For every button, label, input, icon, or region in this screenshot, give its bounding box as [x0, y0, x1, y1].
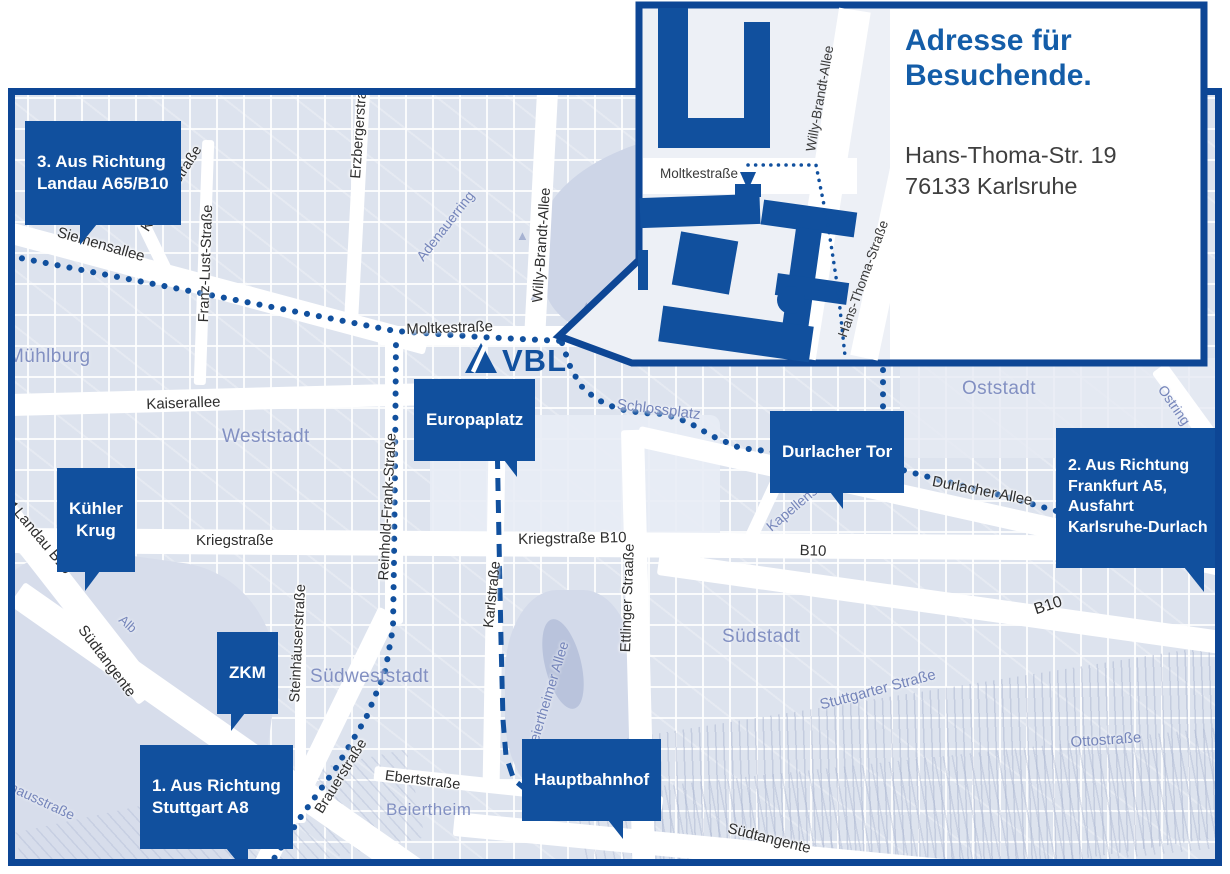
district-label-muehlburg: Mühlburg: [8, 346, 90, 368]
vbl-directions-map-page: ▲ ▲ ▲ Siemensallee Kußmaulstraße Franz-L…: [0, 0, 1230, 874]
district-label-oststadt: Oststadt: [962, 378, 1036, 400]
badge-durlacher-tor-label: Durlacher Tor: [782, 442, 892, 461]
badge-route-2-frankfurt: 2. Aus Richtung Frankfurt A5, Ausfahrt K…: [1056, 428, 1220, 568]
district-label-suedstadt: Südstadt: [722, 626, 800, 648]
badge-tail: [830, 492, 843, 509]
district-label-suedweststadt: Südweststadt: [310, 666, 429, 688]
badge-route-2-label: 2. Aus Richtung Frankfurt A5, Ausfahrt K…: [1068, 457, 1208, 535]
badge-tail: [608, 820, 623, 839]
street-label-b10-center: B10: [799, 542, 826, 560]
badge-tail: [504, 460, 517, 477]
badge-zkm: ZKM: [217, 632, 278, 714]
badge-tail: [226, 848, 248, 866]
map-content: ▲ ▲ ▲ Siemensallee Kußmaulstraße Franz-L…: [8, 88, 1222, 866]
badge-tail: [231, 713, 245, 731]
badge-europaplatz-label: Europaplatz: [426, 410, 523, 429]
tree-icon: ▲: [580, 298, 593, 313]
street-label-kaiserallee: Kaiserallee: [146, 393, 221, 413]
badge-tail: [85, 571, 100, 591]
vbl-triangle-icon: [464, 341, 498, 375]
badge-kuehler-krug: Kühler Krug: [57, 468, 135, 572]
inset-title: Adresse für Besuchende.: [905, 24, 1155, 93]
district-label-weststadt: Weststadt: [222, 426, 310, 448]
street-label-kriegstrasse-b10: Kriegstraße B10: [518, 529, 627, 548]
vbl-logo-text: VBL: [502, 347, 567, 375]
badge-durlacher-tor: Durlacher Tor: [770, 411, 904, 493]
badge-route-1-label: 1. Aus Richtung Stuttgart A8: [152, 776, 281, 817]
badge-tail: [80, 224, 97, 245]
tree-icon: ▲: [516, 228, 529, 243]
badge-hauptbahnhof-label: Hauptbahnhof: [534, 770, 649, 789]
street-label-kriegstrasse: Kriegstraße: [196, 532, 274, 549]
vbl-logo: VBL: [464, 341, 567, 375]
badge-route-3-label: 3. Aus Richtung Landau A65/B10: [37, 152, 169, 193]
badge-kuehler-krug-label: Kühler Krug: [69, 499, 123, 540]
street-label-moltkestrasse: Moltkestraße: [406, 318, 493, 338]
badge-hauptbahnhof: Hauptbahnhof: [522, 739, 661, 821]
city-map: ▲ ▲ ▲ Siemensallee Kußmaulstraße Franz-L…: [8, 88, 1222, 866]
inset-address: Hans-Thoma-Str. 19 76133 Karlsruhe: [905, 140, 1117, 202]
district-label-beiertheim: Beiertheim: [386, 800, 471, 820]
badge-europaplatz: Europaplatz: [414, 379, 535, 461]
badge-zkm-label: ZKM: [229, 663, 266, 682]
badge-route-1-stuttgart: 1. Aus Richtung Stuttgart A8: [140, 745, 293, 849]
badge-route-3-landau: 3. Aus Richtung Landau A65/B10: [25, 121, 181, 225]
inset-street-label-moltkestrasse: Moltkestraße: [660, 166, 738, 181]
badge-tail: [1184, 567, 1204, 592]
